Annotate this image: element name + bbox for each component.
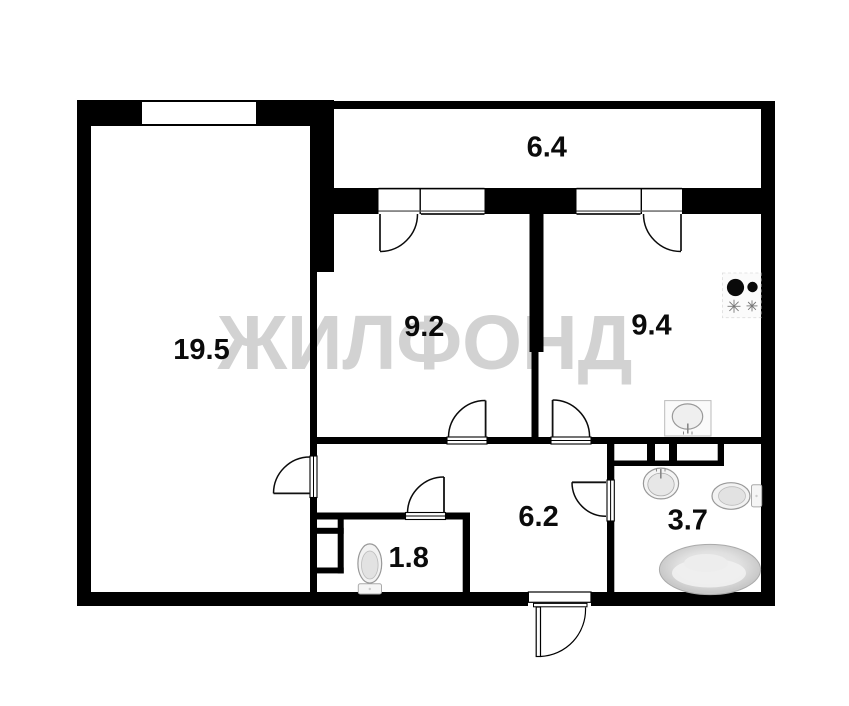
svg-text:9.2: 9.2	[404, 311, 444, 343]
svg-text:9.4: 9.4	[631, 309, 671, 341]
svg-text:6.2: 6.2	[518, 501, 558, 533]
svg-text:19.5: 19.5	[173, 334, 229, 366]
svg-text:6.4: 6.4	[527, 131, 567, 163]
svg-text:3.7: 3.7	[668, 504, 708, 536]
svg-text:1.8: 1.8	[389, 542, 429, 574]
